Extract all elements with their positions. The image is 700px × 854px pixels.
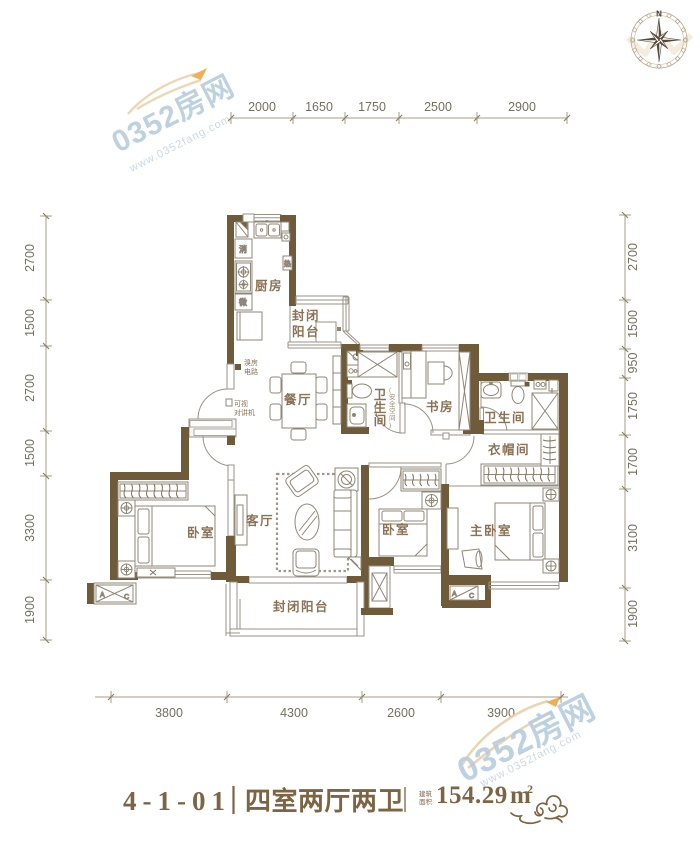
svg-text:全: 全 — [389, 399, 396, 408]
svg-text:4-1-01: 4-1-01 — [123, 786, 231, 816]
svg-text:A: A — [100, 592, 105, 599]
svg-text:): ) — [389, 422, 391, 429]
svg-text:4300: 4300 — [280, 706, 308, 720]
svg-text:面积: 面积 — [419, 797, 433, 806]
svg-text:建筑: 建筑 — [419, 789, 433, 798]
svg-text:阳台: 阳台 — [292, 324, 320, 339]
svg-text:衣帽间: 衣帽间 — [488, 442, 530, 457]
svg-text:1750: 1750 — [358, 100, 386, 114]
svg-text:间: 间 — [389, 414, 396, 422]
svg-text:2600: 2600 — [387, 706, 415, 720]
svg-text:卧室: 卧室 — [382, 522, 410, 537]
svg-text:2: 2 — [527, 782, 533, 796]
svg-text:950: 950 — [626, 353, 640, 374]
svg-text:A: A — [452, 591, 457, 598]
svg-text:1500: 1500 — [23, 309, 37, 337]
svg-text:2500: 2500 — [424, 100, 452, 114]
svg-text:2000: 2000 — [248, 100, 276, 114]
svg-text:空: 空 — [389, 406, 396, 415]
svg-text:3300: 3300 — [23, 514, 37, 542]
svg-text:1900: 1900 — [626, 600, 640, 628]
svg-text:热: 热 — [284, 259, 291, 268]
svg-text:溴房: 溴房 — [244, 358, 258, 367]
svg-text:2700: 2700 — [626, 243, 640, 271]
svg-text:C: C — [469, 593, 474, 600]
svg-text:1750: 1750 — [626, 392, 640, 420]
svg-text:1650: 1650 — [305, 100, 333, 114]
svg-text:餐厅: 餐厅 — [283, 392, 312, 407]
svg-text:卫: 卫 — [374, 388, 387, 402]
svg-text:3100: 3100 — [626, 524, 640, 552]
svg-text:封闭阳台: 封闭阳台 — [273, 599, 329, 614]
svg-text:间: 间 — [374, 413, 387, 428]
svg-text:书房: 书房 — [426, 399, 454, 414]
svg-text:卧室: 卧室 — [187, 525, 215, 540]
svg-text:1500: 1500 — [626, 310, 640, 338]
svg-text:卫生间: 卫生间 — [484, 410, 526, 425]
svg-text:微: 微 — [239, 297, 247, 307]
svg-text:可视: 可视 — [234, 399, 248, 408]
svg-text:1700: 1700 — [626, 448, 640, 476]
svg-text:3800: 3800 — [155, 706, 183, 720]
svg-text:C: C — [124, 594, 129, 601]
svg-text:生: 生 — [374, 400, 387, 415]
svg-text:1900: 1900 — [23, 596, 37, 624]
svg-text:封闭: 封闭 — [292, 308, 320, 323]
svg-text:1500: 1500 — [23, 439, 37, 467]
svg-text:厨房: 厨房 — [255, 278, 283, 293]
svg-text:客厅: 客厅 — [245, 513, 274, 528]
svg-text:消: 消 — [239, 244, 247, 254]
svg-text:四室两厅两卫: 四室两厅两卫 — [245, 786, 404, 816]
svg-text:对讲机: 对讲机 — [234, 408, 255, 417]
svg-text:(: ( — [389, 387, 392, 394]
svg-text:2900: 2900 — [508, 100, 536, 114]
svg-text:电路: 电路 — [244, 367, 258, 376]
svg-text:主卧室: 主卧室 — [470, 523, 512, 538]
svg-text:安: 安 — [389, 392, 396, 401]
svg-text:2700: 2700 — [23, 374, 37, 402]
svg-text:2700: 2700 — [23, 244, 37, 272]
svg-text:N: N — [656, 10, 662, 19]
